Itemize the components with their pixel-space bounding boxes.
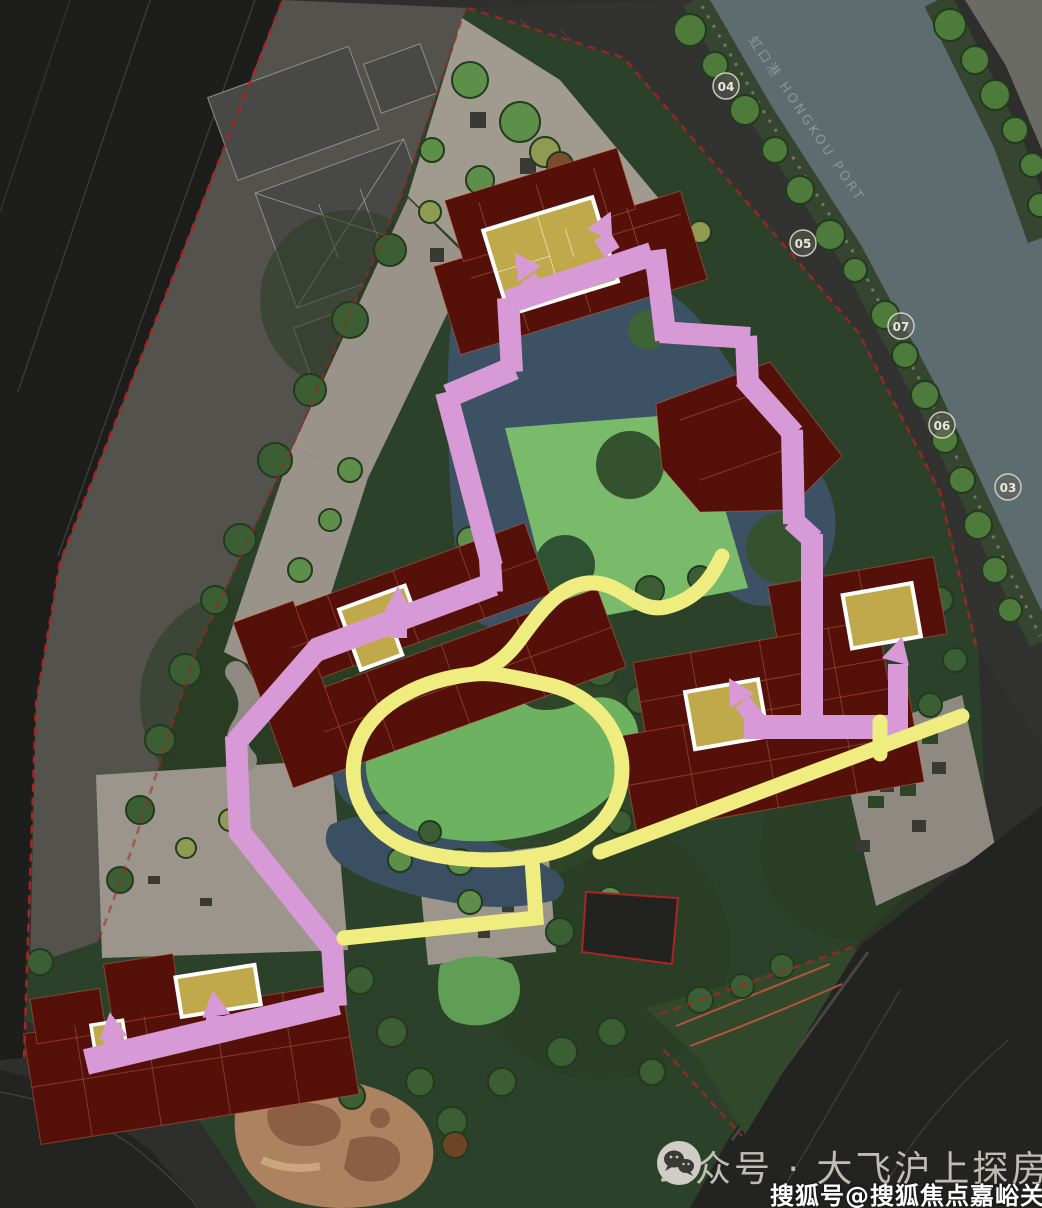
road-marker-03: 03 [995,474,1021,500]
svg-text:07: 07 [893,320,910,334]
road-marker-07: 07 [888,313,914,339]
site-plan-canvas: 虹口港 HONGKOU PORT [0,0,1042,1208]
road-marker-04: 04 [713,73,739,99]
site-plan-page: 虹口港 HONGKOU PORT [0,0,1042,1208]
svg-text:05: 05 [795,237,812,251]
highlight-unit-east-right [843,583,921,648]
road-marker-05: 05 [790,230,816,256]
svg-text:04: 04 [718,80,735,94]
se-parking-wedge [582,892,678,964]
wechat-icon [656,1140,702,1186]
watermark-sohu: 搜狐号@搜狐焦点嘉峪关站 [770,1176,1042,1208]
small-lawn [438,956,520,1025]
watermark-sohu-text: 搜狐号@搜狐焦点嘉峪关站 [770,1182,1042,1208]
road-marker-06: 06 [929,412,955,438]
svg-text:03: 03 [1000,481,1017,495]
svg-text:06: 06 [934,419,951,433]
